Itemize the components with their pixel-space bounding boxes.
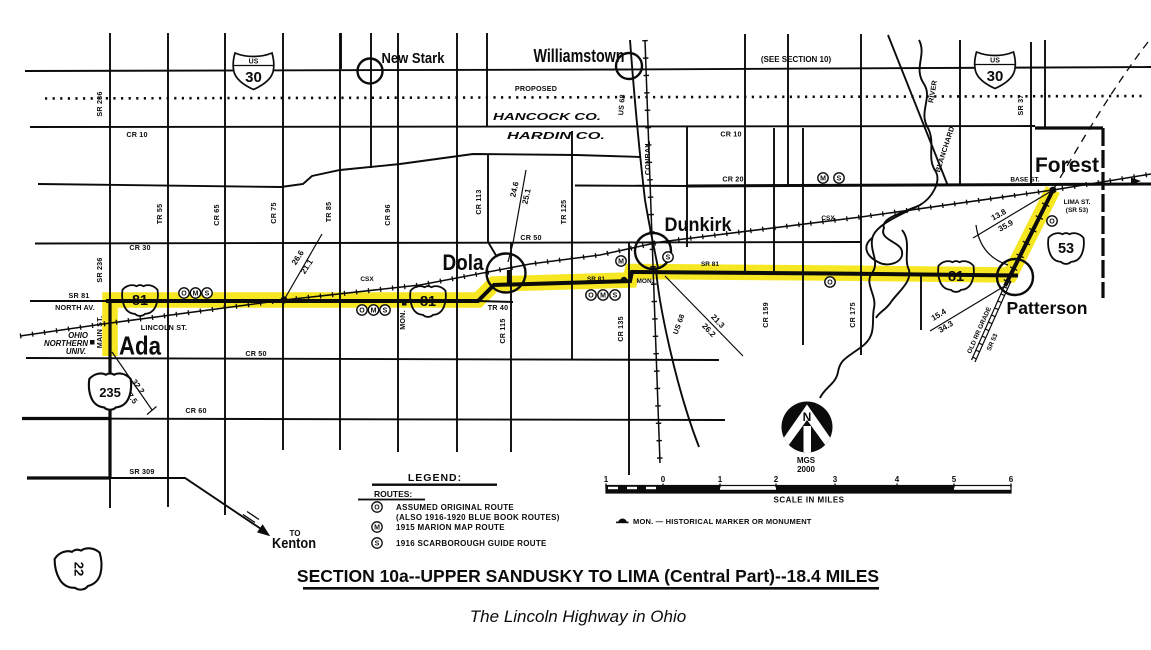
svg-text:CR 113: CR 113 bbox=[474, 189, 483, 214]
svg-text:CR 50: CR 50 bbox=[245, 349, 266, 358]
svg-text:SR 81: SR 81 bbox=[701, 261, 719, 268]
svg-text:O: O bbox=[374, 505, 380, 512]
svg-text:ASSUMED ORIGINAL ROUTE: ASSUMED ORIGINAL ROUTE bbox=[396, 503, 514, 512]
svg-text:TR 40: TR 40 bbox=[488, 303, 509, 312]
svg-text:CSX: CSX bbox=[360, 276, 374, 283]
svg-text:N: N bbox=[803, 410, 812, 424]
svg-text:MON. — HISTORICAL MARKER OR: MON. — HISTORICAL MARKER OR MONUMENT bbox=[633, 517, 812, 526]
svg-text:CR 60: CR 60 bbox=[185, 406, 206, 415]
svg-text:CR 10: CR 10 bbox=[720, 130, 741, 139]
svg-text:SR 236: SR 236 bbox=[95, 91, 104, 116]
svg-text:MGS: MGS bbox=[797, 456, 816, 465]
svg-text:TR 55: TR 55 bbox=[155, 204, 164, 225]
svg-text:S: S bbox=[383, 308, 388, 315]
svg-text:53: 53 bbox=[1058, 241, 1074, 257]
svg-text:PROPOSED: PROPOSED bbox=[515, 84, 557, 93]
svg-text:1: 1 bbox=[718, 475, 723, 484]
svg-text:O: O bbox=[181, 291, 187, 298]
svg-text:MON.: MON. bbox=[398, 310, 407, 330]
svg-text:BASE ST.: BASE ST. bbox=[1010, 177, 1039, 184]
svg-text:81: 81 bbox=[948, 269, 964, 285]
svg-text:S: S bbox=[205, 291, 210, 298]
svg-text:Williamstown: Williamstown bbox=[534, 46, 625, 66]
svg-text:CR 10: CR 10 bbox=[126, 130, 147, 139]
svg-text:M: M bbox=[193, 291, 199, 298]
svg-text:1915 MARION MAP ROUTE: 1915 MARION MAP ROUTE bbox=[396, 523, 505, 532]
svg-text:Ada: Ada bbox=[119, 331, 161, 361]
svg-text:S: S bbox=[666, 255, 671, 262]
svg-text:30: 30 bbox=[245, 69, 262, 86]
svg-text:LINCOLN ST.: LINCOLN ST. bbox=[141, 323, 188, 332]
svg-text:O: O bbox=[827, 280, 833, 287]
svg-text:ROUTES:: ROUTES: bbox=[374, 489, 412, 499]
svg-text:CSX: CSX bbox=[821, 215, 835, 222]
svg-text:(SEE SECTION 10): (SEE SECTION 10) bbox=[761, 55, 832, 64]
svg-text:M: M bbox=[600, 293, 606, 300]
svg-text:MAIN ST.: MAIN ST. bbox=[95, 316, 104, 348]
svg-text:1: 1 bbox=[604, 475, 609, 484]
svg-text:CR 50: CR 50 bbox=[520, 233, 541, 242]
svg-text:HANCOCK CO.: HANCOCK CO. bbox=[493, 112, 601, 123]
svg-text:81: 81 bbox=[132, 293, 148, 309]
svg-text:US: US bbox=[249, 59, 259, 66]
svg-text:M: M bbox=[374, 525, 380, 532]
svg-text:SR 81: SR 81 bbox=[587, 276, 605, 283]
svg-text:TR 125: TR 125 bbox=[559, 200, 568, 225]
svg-text:SR 37: SR 37 bbox=[1016, 95, 1025, 116]
svg-text:2: 2 bbox=[774, 475, 779, 484]
svg-text:O: O bbox=[1049, 219, 1055, 226]
svg-text:CR 135: CR 135 bbox=[616, 316, 625, 342]
svg-text:4: 4 bbox=[895, 475, 900, 484]
svg-text:6: 6 bbox=[1009, 475, 1014, 484]
svg-text:CR 96: CR 96 bbox=[383, 204, 392, 225]
svg-text:M: M bbox=[820, 176, 826, 183]
svg-text:CR 175: CR 175 bbox=[848, 302, 857, 328]
svg-text:LEGEND:: LEGEND: bbox=[408, 472, 462, 484]
svg-text:M: M bbox=[371, 308, 377, 315]
svg-text:SR 309: SR 309 bbox=[129, 467, 154, 476]
svg-text:(SR 53): (SR 53) bbox=[1066, 207, 1088, 214]
svg-text:(ALSO 1916-1920 BLUE BOOK ROUT: (ALSO 1916-1920 BLUE BOOK ROUTES) bbox=[396, 513, 560, 522]
svg-text:SCALE IN MILES: SCALE IN MILES bbox=[773, 496, 844, 505]
svg-text:SR 236: SR 236 bbox=[95, 257, 104, 282]
svg-text:LIMA ST.: LIMA ST. bbox=[1064, 199, 1091, 206]
svg-text:3: 3 bbox=[833, 475, 838, 484]
svg-text:CR 20: CR 20 bbox=[722, 175, 743, 184]
svg-text:Dola: Dola bbox=[443, 250, 485, 275]
svg-text:CR 65: CR 65 bbox=[212, 204, 221, 225]
svg-text:S: S bbox=[837, 176, 842, 183]
svg-text:The Lincoln Highway in Ohio: The Lincoln Highway in Ohio bbox=[470, 607, 686, 626]
svg-text:30: 30 bbox=[987, 68, 1004, 85]
svg-text:M: M bbox=[618, 259, 624, 266]
svg-text:CR 115: CR 115 bbox=[498, 318, 507, 343]
svg-text:2000: 2000 bbox=[797, 465, 815, 474]
svg-text:Dunkirk: Dunkirk bbox=[665, 215, 732, 236]
svg-text:O: O bbox=[359, 308, 365, 315]
svg-text:CR 75: CR 75 bbox=[269, 202, 278, 223]
svg-text:81: 81 bbox=[420, 294, 436, 310]
svg-text:TR 85: TR 85 bbox=[324, 202, 333, 223]
svg-text:5: 5 bbox=[952, 475, 957, 484]
svg-text:CR 159: CR 159 bbox=[761, 302, 770, 328]
svg-text:S: S bbox=[613, 293, 618, 300]
svg-text:SR 81: SR 81 bbox=[69, 291, 90, 300]
svg-text:NORTH AV.: NORTH AV. bbox=[55, 303, 95, 312]
svg-text:SECTION 10a--UPPER SANDUSKY TO: SECTION 10a--UPPER SANDUSKY TO LIMA (Cen… bbox=[297, 566, 879, 586]
svg-text:22: 22 bbox=[72, 562, 87, 576]
svg-text:0: 0 bbox=[661, 475, 666, 484]
svg-text:US: US bbox=[990, 58, 1000, 65]
svg-text:New Stark: New Stark bbox=[382, 50, 446, 67]
svg-text:Kenton: Kenton bbox=[272, 536, 316, 552]
svg-text:O: O bbox=[588, 293, 594, 300]
svg-text:MON.: MON. bbox=[637, 278, 654, 285]
svg-text:CR 30: CR 30 bbox=[129, 243, 150, 252]
svg-text:S: S bbox=[375, 541, 380, 548]
svg-text:CONRAIL: CONRAIL bbox=[643, 141, 652, 176]
svg-text:US 68: US 68 bbox=[616, 94, 627, 116]
svg-text:Forest: Forest bbox=[1035, 154, 1099, 177]
svg-text:Patterson: Patterson bbox=[1007, 298, 1088, 318]
svg-text:1916 SCARBOROUGH GUIDE ROUTE: 1916 SCARBOROUGH GUIDE ROUTE bbox=[396, 539, 547, 548]
svg-text:HARDIN CO.: HARDIN CO. bbox=[507, 131, 605, 142]
svg-text:UNIV.: UNIV. bbox=[66, 347, 86, 356]
svg-text:235: 235 bbox=[99, 385, 121, 400]
